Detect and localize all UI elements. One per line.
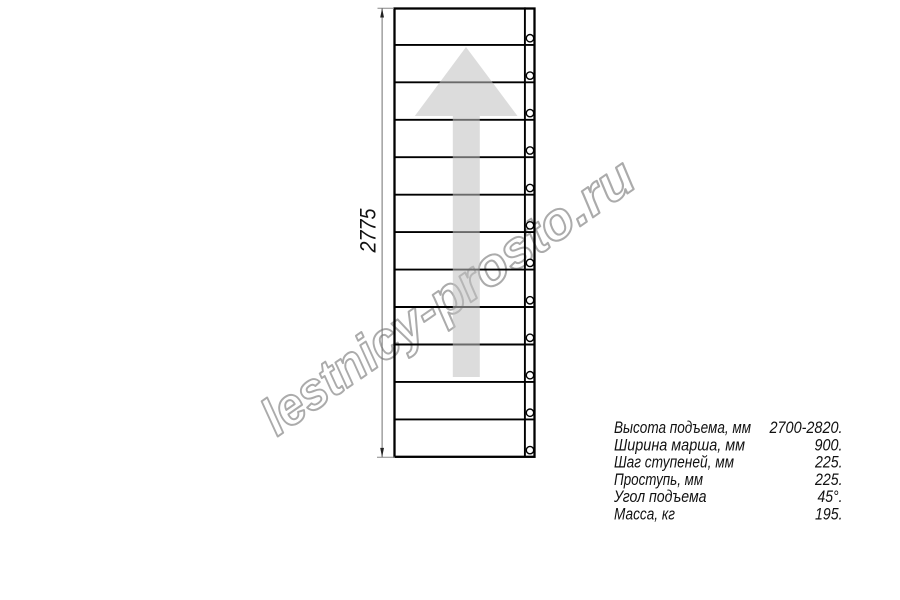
svg-text:2775: 2775 <box>356 208 381 254</box>
svg-text:Шаг ступеней, мм: Шаг ступеней, мм <box>614 453 734 472</box>
svg-text:lestnic: lestnic <box>250 310 412 447</box>
svg-text:Высота подъема, мм: Высота подъема, мм <box>614 418 751 437</box>
svg-text:Угол подъема: Угол подъема <box>613 487 706 506</box>
svg-text:225.: 225. <box>814 453 842 472</box>
svg-text:225.: 225. <box>814 470 842 489</box>
svg-text:prosto: prosto <box>415 188 586 332</box>
svg-text:195.: 195. <box>815 504 843 523</box>
svg-text:Ширина марша, мм: Ширина марша, мм <box>614 435 745 454</box>
svg-text:900.: 900. <box>815 435 843 454</box>
svg-text:2700-2820.: 2700-2820. <box>769 418 843 437</box>
svg-text:45°.: 45°. <box>818 487 843 506</box>
svg-text:Масса, кг: Масса, кг <box>614 504 675 523</box>
svg-text:Проступь, мм: Проступь, мм <box>614 470 703 489</box>
